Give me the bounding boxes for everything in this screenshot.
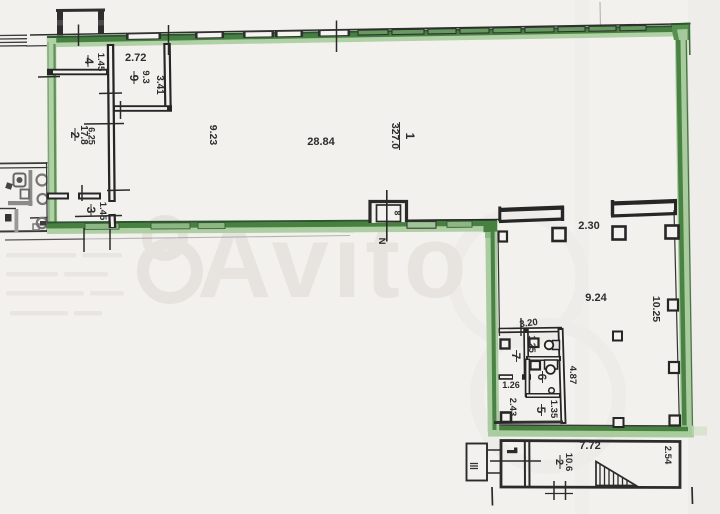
svg-text:10.25: 10.25 xyxy=(650,296,662,322)
svg-text:1.25: 1.25 xyxy=(527,335,537,353)
svg-text:8: 8 xyxy=(393,211,403,216)
svg-text:9.24: 9.24 xyxy=(585,292,607,304)
svg-text:1.35: 1.35 xyxy=(548,400,559,419)
svg-text:4: 4 xyxy=(82,58,96,65)
svg-text:9.3: 9.3 xyxy=(140,70,151,83)
svg-text:3.41: 3.41 xyxy=(154,75,165,95)
svg-text:1.26: 1.26 xyxy=(502,380,520,390)
svg-text:6.25: 6.25 xyxy=(87,127,97,145)
svg-text:10.6: 10.6 xyxy=(563,453,574,472)
svg-text:28.84: 28.84 xyxy=(307,136,335,148)
svg-text:1.45: 1.45 xyxy=(97,202,108,221)
svg-text:1: 1 xyxy=(403,133,417,140)
svg-text:9.23: 9.23 xyxy=(207,125,219,146)
svg-text:2.54: 2.54 xyxy=(662,446,673,465)
svg-text:2.43: 2.43 xyxy=(507,398,518,417)
svg-text:2.30: 2.30 xyxy=(578,220,599,232)
svg-text:1.45: 1.45 xyxy=(95,53,106,72)
svg-text:4.87: 4.87 xyxy=(567,366,578,385)
svg-text:2.72: 2.72 xyxy=(125,52,146,64)
svg-text:7.72: 7.72 xyxy=(579,440,600,452)
svg-text:N: N xyxy=(376,238,387,245)
